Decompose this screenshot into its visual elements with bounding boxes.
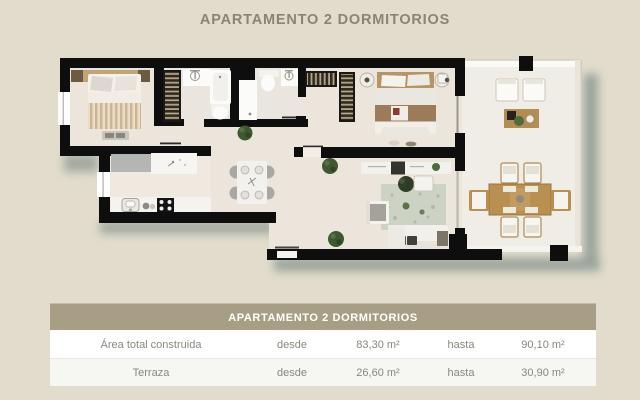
svg-text:hasta: hasta — [448, 367, 476, 379]
svg-text:desde: desde — [277, 339, 307, 351]
svg-text:83,30 m²: 83,30 m² — [356, 339, 400, 351]
svg-text:Área total construida: Área total construida — [101, 338, 203, 351]
svg-text:30,90 m²: 30,90 m² — [521, 367, 565, 379]
svg-text:90,10 m²: 90,10 m² — [521, 339, 565, 351]
svg-text:Terraza: Terraza — [133, 367, 171, 379]
svg-text:APARTAMENTO 2 DORMITORIOS: APARTAMENTO 2 DORMITORIOS — [200, 12, 450, 28]
svg-text:desde: desde — [277, 367, 307, 379]
svg-text:APARTAMENTO 2 DORMITORIOS: APARTAMENTO 2 DORMITORIOS — [228, 312, 418, 324]
svg-text:hasta: hasta — [448, 339, 476, 351]
svg-text:26,60 m²: 26,60 m² — [356, 367, 400, 379]
